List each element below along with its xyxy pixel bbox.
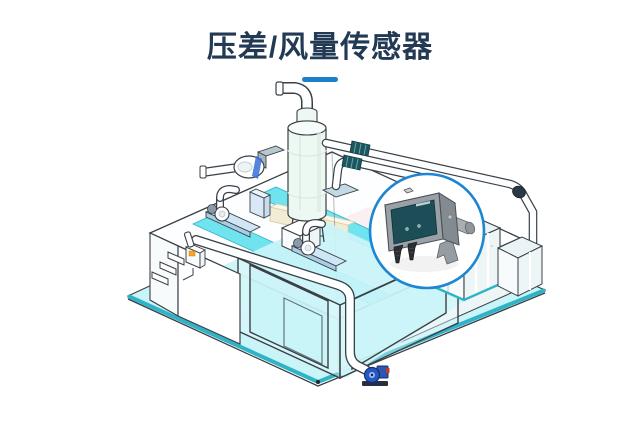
title-divider (302, 77, 338, 82)
pipe-end-cap (276, 82, 283, 95)
pump-red-cap (386, 368, 390, 373)
floor-corner-bolt (316, 380, 320, 384)
pipe-flange (200, 166, 206, 178)
page-title: 压差/风量传感器 (0, 0, 640, 63)
fan-motor (208, 205, 217, 214)
flex-duct-connector (350, 141, 370, 156)
scrubber-tank (276, 82, 326, 254)
page: 压差/风量传感器 (0, 0, 640, 425)
ahu-side-unit (498, 237, 542, 296)
header: 压差/风量传感器 (0, 0, 640, 82)
sensor-callout-circle (370, 174, 484, 288)
equipment-cabinet (250, 189, 270, 218)
fan-motor (294, 239, 303, 248)
status-indicator (189, 251, 195, 256)
blower-pump (200, 146, 284, 179)
